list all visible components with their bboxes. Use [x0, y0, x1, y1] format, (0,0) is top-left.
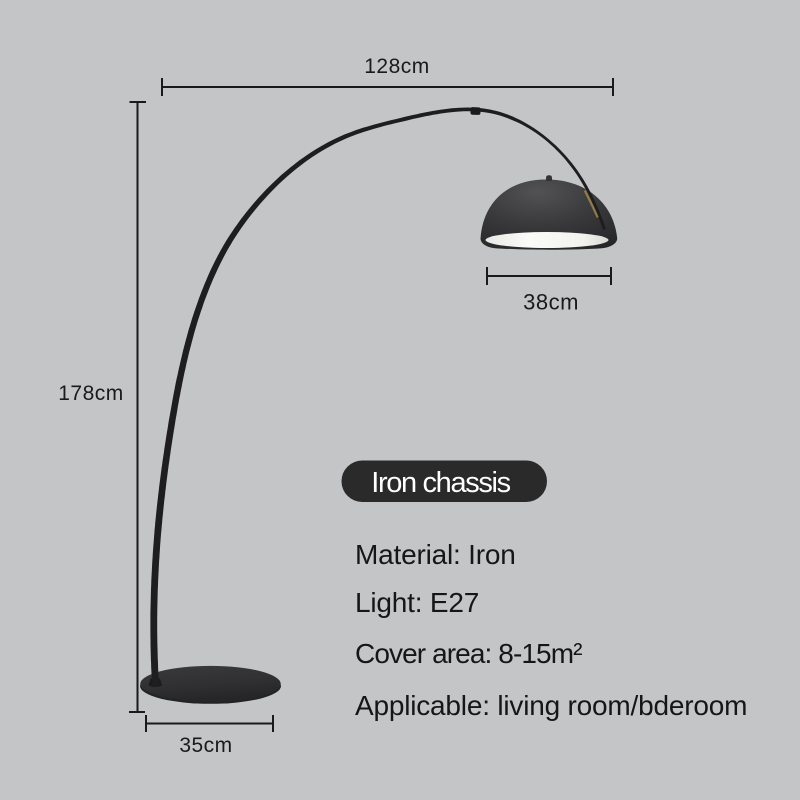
- svg-text:Light: E27: Light: E27: [355, 587, 479, 618]
- svg-text:38cm: 38cm: [523, 290, 579, 315]
- svg-text:Material: Iron: Material: Iron: [355, 539, 516, 570]
- svg-text:Cover area: 8-15m²: Cover area: 8-15m²: [355, 638, 582, 669]
- svg-text:128cm: 128cm: [364, 55, 430, 78]
- svg-text:Applicable: living room/bderoo: Applicable: living room/bderoom: [355, 690, 747, 721]
- svg-text:35cm: 35cm: [179, 734, 232, 757]
- svg-text:Iron chassis: Iron chassis: [371, 467, 510, 499]
- svg-text:178cm: 178cm: [58, 382, 124, 405]
